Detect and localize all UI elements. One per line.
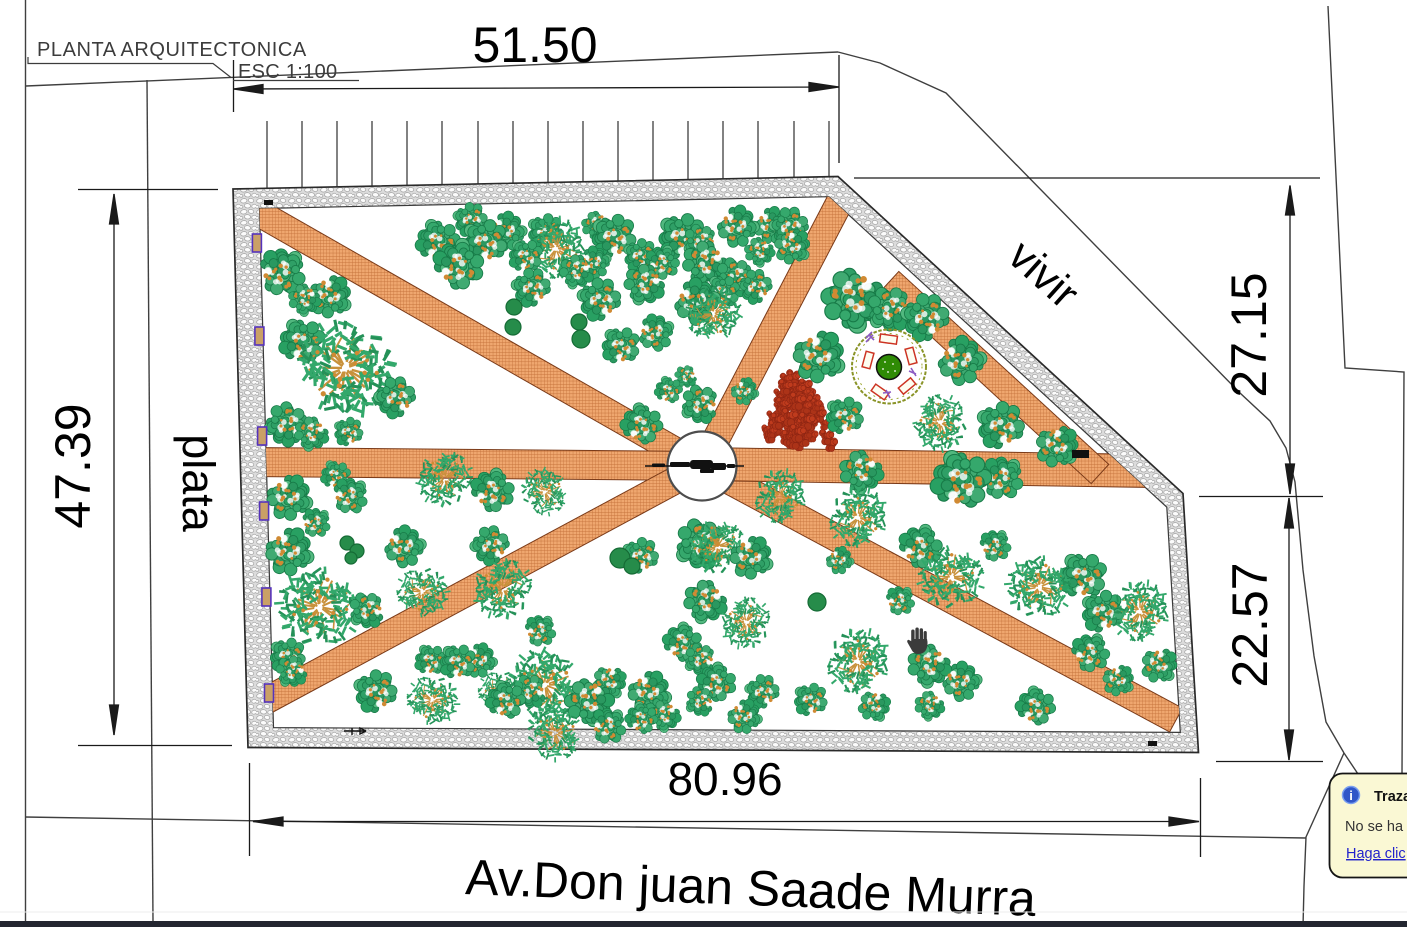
svg-text:ESC 1:100: ESC 1:100 [238, 61, 337, 83]
svg-text:No se ha: No se ha [1345, 819, 1404, 835]
svg-text:80.96: 80.96 [667, 753, 782, 805]
svg-text:47.39: 47.39 [45, 403, 101, 528]
svg-text:plata: plata [173, 434, 224, 533]
svg-text:PLANTA ARQUITECTONICA: PLANTA ARQUITECTONICA [37, 39, 307, 61]
svg-text:Traza: Traza [1374, 789, 1407, 805]
svg-text:22.57: 22.57 [1222, 562, 1278, 687]
svg-text:Haga clic: Haga clic [1346, 846, 1406, 862]
svg-text:i: i [1349, 788, 1353, 803]
svg-text:51.50: 51.50 [472, 17, 597, 73]
svg-text:27.15: 27.15 [1221, 272, 1277, 397]
